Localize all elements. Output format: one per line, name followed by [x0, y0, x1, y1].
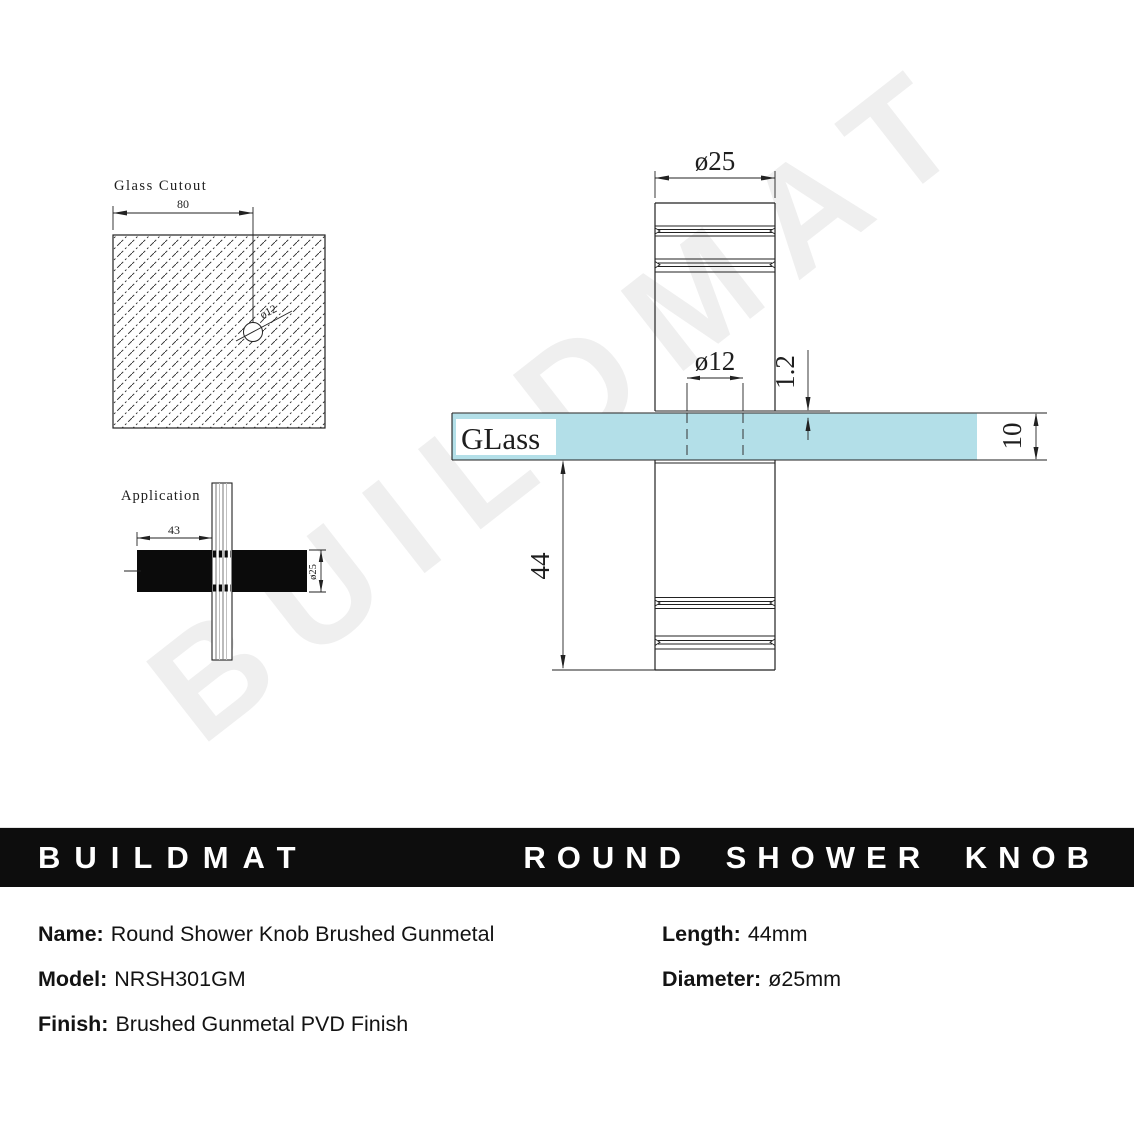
spec-finish-label: Finish: — [38, 1012, 108, 1036]
knob-diameter-dim: ø25 — [695, 146, 736, 176]
arrowhead — [761, 176, 775, 181]
spec-name: Name:Round Shower Knob Brushed Gunmetal — [38, 922, 494, 947]
cutout-width-dim: 80 — [177, 197, 189, 211]
arrowhead — [561, 460, 566, 474]
arrowhead — [113, 211, 127, 216]
arrowhead — [1034, 413, 1039, 426]
spec-diameter: Diameter:ø25mm — [662, 967, 841, 992]
technical-drawing: Glass Cutout 80 ø12 Application — [0, 0, 1134, 820]
glass-cutout-title: Glass Cutout — [114, 178, 207, 194]
glass-cutout-diagram: Glass Cutout 80 ø12 — [113, 178, 325, 428]
knob-lower-body — [655, 460, 775, 670]
arrowhead — [319, 580, 323, 592]
spec-model: Model:NRSH301GM — [38, 967, 246, 992]
product-title: ROUND SHOWER KNOB — [523, 840, 1100, 876]
application-width-dim: 43 — [168, 523, 180, 537]
application-glass-strip — [212, 483, 232, 660]
spec-diameter-value: ø25mm — [768, 967, 841, 991]
arrowhead — [806, 397, 811, 411]
arrowhead — [561, 655, 566, 669]
length-dimension: 44 — [525, 460, 656, 670]
arrowhead — [137, 536, 150, 540]
title-banner: BUILDMAT ROUND SHOWER KNOB — [0, 827, 1134, 887]
arrowhead — [199, 536, 212, 540]
spec-finish-value: Brushed Gunmetal PVD Finish — [115, 1012, 408, 1036]
arrowhead — [1034, 447, 1039, 460]
application-diagram: Application 43 ø25 — [121, 483, 326, 660]
glass-thickness-text: 10 — [997, 423, 1027, 450]
length-dim-text: 44 — [525, 552, 555, 580]
knob-half-left — [137, 550, 212, 592]
glass-label: GLass — [461, 421, 540, 456]
arrowhead — [319, 550, 323, 562]
product-drawing-page: BUILDMAT Glass Cutout 80 ø12 Application — [0, 0, 1134, 1134]
spec-length-value: 44mm — [748, 922, 808, 946]
spec-length-label: Length: — [662, 922, 741, 946]
arrowhead — [730, 376, 743, 380]
brand-name: BUILDMAT — [38, 840, 310, 876]
knob-hole-dim: ø12 — [695, 346, 736, 376]
arrowhead — [655, 176, 669, 181]
spec-name-label: Name: — [38, 922, 104, 946]
spec-diameter-label: Diameter: — [662, 967, 761, 991]
spec-model-label: Model: — [38, 967, 107, 991]
glass-thickness-dimension: 10 — [997, 413, 1039, 460]
arrowhead — [687, 376, 700, 380]
spec-name-value: Round Shower Knob Brushed Gunmetal — [111, 922, 495, 946]
knob-upper-body — [655, 203, 830, 411]
spec-finish: Finish:Brushed Gunmetal PVD Finish — [38, 1012, 408, 1037]
glass-panel-hatched — [113, 235, 325, 428]
glass-panel: GLass — [452, 413, 1047, 460]
spec-length: Length:44mm — [662, 922, 808, 947]
knob-half-right — [232, 550, 307, 592]
arrowhead — [239, 211, 253, 216]
application-diameter-dim: ø25 — [308, 564, 319, 580]
main-knob-view: ø25 — [452, 146, 1047, 670]
gap-dim-text: 1.2 — [770, 355, 800, 389]
application-title: Application — [121, 488, 200, 504]
spec-model-value: NRSH301GM — [114, 967, 245, 991]
